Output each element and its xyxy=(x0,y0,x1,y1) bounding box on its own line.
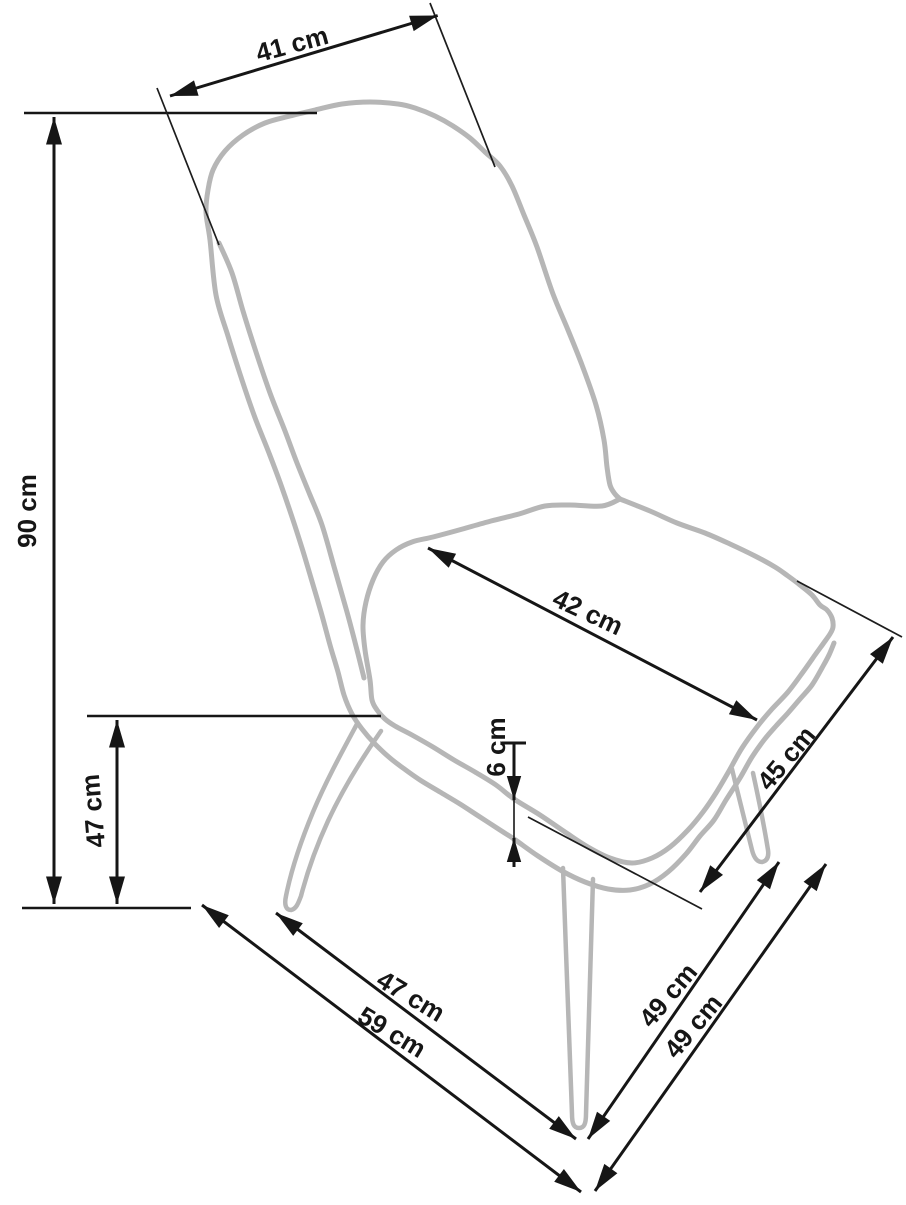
svg-text:90 cm: 90 cm xyxy=(12,474,42,548)
svg-text:6 cm: 6 cm xyxy=(481,717,511,776)
svg-text:47 cm: 47 cm xyxy=(75,773,111,849)
